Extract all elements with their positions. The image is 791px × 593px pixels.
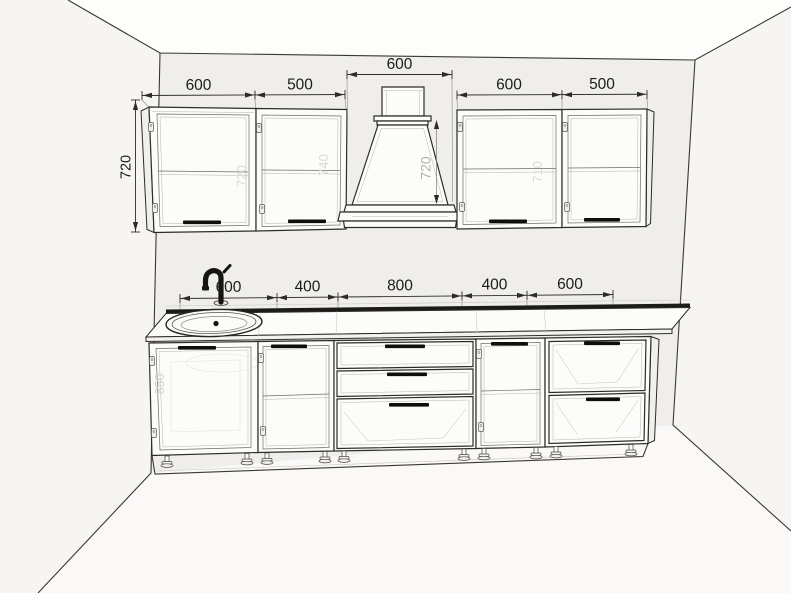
hinge-icon	[565, 203, 570, 212]
door-handle	[183, 221, 221, 225]
upper-cabinet-500-left	[256, 109, 347, 232]
hood-base-bottom	[344, 221, 457, 228]
door-handle	[178, 346, 216, 350]
hinge-icon	[259, 354, 264, 363]
dim-label: 500	[287, 77, 313, 94]
hinge-icon	[460, 203, 465, 212]
base-cabinet-sink-600: 850	[149, 342, 258, 456]
door-handle	[271, 345, 307, 349]
base-cabinet-drawers-800	[334, 339, 476, 451]
hinge-icon	[152, 429, 157, 438]
dim-label: 600	[387, 56, 413, 73]
hinge-icon	[479, 423, 484, 432]
base-cabinet-door-400-left	[258, 341, 334, 453]
upper-cabinet-500-right	[562, 109, 647, 228]
door-handle	[584, 218, 620, 222]
hinge-icon	[261, 427, 266, 436]
dim-label: 400	[295, 278, 321, 295]
upper-cabinet-600-right	[457, 110, 562, 230]
base-cabinet-door-400-right	[476, 338, 545, 449]
hinge-icon	[563, 123, 568, 132]
base-height-label: 850	[153, 374, 167, 395]
door-handle	[489, 220, 527, 224]
drawing-canvas: 720 740 720	[0, 0, 791, 593]
door-handle	[288, 220, 326, 224]
faint-inner-dim: 710	[530, 161, 545, 183]
sink-drain	[213, 321, 218, 326]
dim-label: 800	[387, 277, 413, 294]
hinge-icon	[477, 350, 482, 359]
drawer-handle	[584, 342, 620, 346]
faint-inner-dim: 740	[316, 154, 331, 176]
hinge-icon	[153, 204, 158, 213]
dim-label-height: 720	[119, 155, 135, 179]
kitchen-elevation-drawing: 720 740 720	[0, 0, 791, 593]
door-handle	[491, 342, 528, 346]
drawer-front	[549, 340, 646, 393]
dim-label: 600	[186, 77, 212, 94]
hinge-icon	[458, 123, 463, 132]
drawer-handle	[387, 373, 427, 377]
hood-duct	[382, 87, 424, 116]
base-cabinet-drawers-600	[545, 337, 659, 448]
dim-label: 600	[496, 77, 522, 94]
faint-inner-dim: 720	[234, 165, 249, 187]
drawer-handle	[586, 398, 620, 402]
hood-base-top	[344, 205, 456, 212]
hinge-icon	[260, 205, 265, 214]
hood-flange	[374, 116, 431, 121]
upper-cabinets-right: 710	[457, 109, 654, 229]
dim-label: 400	[482, 277, 508, 294]
hood-height-label: 720	[418, 156, 434, 180]
hinge-icon	[150, 357, 155, 366]
drawer-handle	[389, 403, 429, 407]
dim-label: 500	[589, 76, 615, 93]
dim-label: 600	[557, 276, 583, 293]
faucet-spout	[202, 286, 209, 291]
drawer-handle	[385, 345, 425, 349]
hinge-icon	[257, 124, 262, 133]
hinge-icon	[149, 123, 154, 132]
ceiling	[68, 0, 791, 60]
upper-cabinets-left: 720 740	[141, 107, 347, 233]
